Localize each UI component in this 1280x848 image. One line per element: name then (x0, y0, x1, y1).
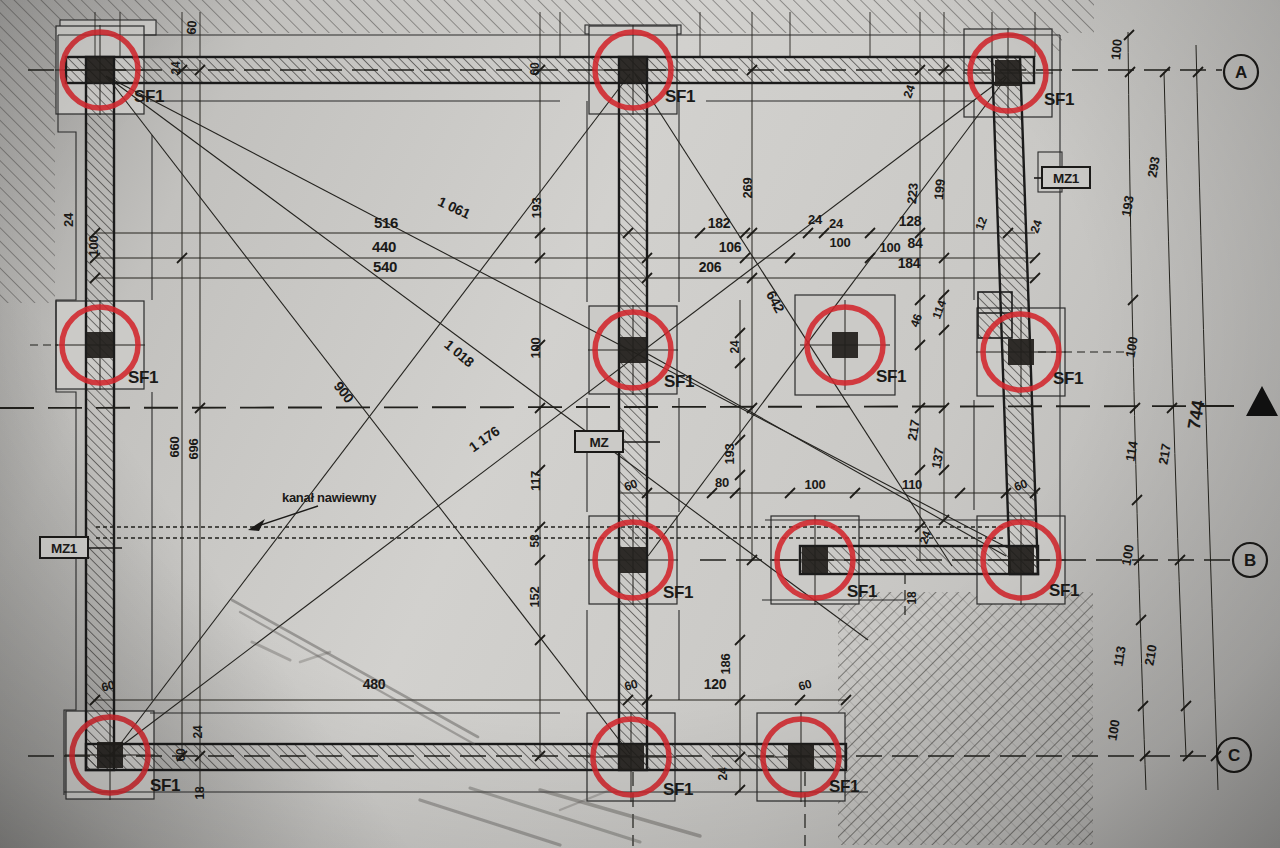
dimension-label: 46 (907, 312, 925, 329)
column-mark-label: SF1 (829, 777, 859, 796)
grid-bubble-label: A (1235, 63, 1247, 82)
dimension-label: 217 (1155, 443, 1173, 466)
dimension-label: 18 (193, 786, 207, 799)
sf1-column (1008, 547, 1034, 573)
dimension-label: 186 (718, 654, 733, 675)
column-mark-label: SF1 (847, 582, 877, 601)
duct-annotation-group: kanał nawiewny (248, 490, 377, 531)
scanned-drawing-photo: kanał nawiewny SF1SF1SF1SF1SF1SF1SF1SF1S… (0, 0, 1280, 848)
dimension-label: 184 (898, 255, 921, 271)
dimension-label: 100 (1108, 39, 1125, 61)
dimension-label: 152 (527, 587, 542, 608)
dimension-label: 24 (716, 767, 730, 780)
grid-bubble-label: B (1244, 551, 1256, 570)
dimension-label: 100 (830, 235, 851, 250)
dimension-label: 106 (719, 239, 742, 255)
dimension-label: 12 (972, 215, 990, 232)
dimension-tick (1124, 30, 1134, 40)
dimension-tick (1181, 701, 1191, 711)
dimension-label: 60 (174, 748, 188, 761)
dimension-label: 1 018 (441, 336, 477, 370)
sf1-column (1008, 339, 1034, 365)
dimension-tick (1193, 67, 1203, 77)
column-mark-label: SF1 (150, 776, 180, 795)
dimension-label: 114 (930, 298, 950, 321)
foundation-plan-svg: kanał nawiewny SF1SF1SF1SF1SF1SF1SF1SF1S… (0, 0, 1280, 848)
dimension-label: 440 (372, 238, 396, 255)
dimension-label: 120 (704, 676, 727, 692)
dimension-label: 660 (167, 437, 182, 458)
sf1-column (87, 57, 113, 83)
dimension-label: 516 (374, 214, 398, 231)
dimension-tick (1160, 67, 1170, 77)
grid-bubble-label: C (1228, 746, 1240, 765)
dimension-label: 100 (1122, 336, 1140, 359)
dimension-label: 540 (373, 258, 397, 275)
column-mark-label: SF1 (134, 87, 164, 106)
dimension-label: 84 (908, 235, 923, 251)
sf1-column (788, 744, 814, 770)
dimension-label: 900 (331, 378, 358, 406)
dimension-label: 100 (1104, 719, 1122, 742)
dimension-label: 100 (880, 240, 901, 255)
dimension-label: 199 (931, 179, 948, 201)
dimension-label: 24 (61, 212, 76, 227)
column-mark-label: SF1 (664, 372, 694, 391)
dimension-label: 24 (916, 529, 934, 546)
column-mark-label: SF1 (1049, 581, 1079, 600)
dimension-label: 24 (829, 216, 844, 231)
datum-triangle-marker (1246, 386, 1278, 416)
wall-tags-layer: MZ1MZMZ1 (40, 167, 1090, 558)
sf1-column (620, 57, 646, 83)
dimension-label: 24 (169, 61, 183, 74)
dimension-tick (1130, 403, 1140, 413)
column-mark-label: SF1 (663, 583, 693, 602)
dimension-label: 206 (699, 259, 722, 275)
dimension-label: 58 (528, 534, 542, 547)
dimension-label: 114 (1122, 439, 1140, 462)
dimension-label: 18 (905, 591, 919, 604)
dimension-label: 60 (183, 20, 199, 35)
sf1-column (620, 547, 646, 573)
dimension-tick (1128, 295, 1138, 305)
dimension-label: 744 (1184, 399, 1209, 431)
sf1-column (97, 742, 123, 768)
dimension-label: 1 061 (436, 193, 474, 222)
dimension-label: 100 (805, 477, 826, 492)
dimension-label: 60 (797, 677, 814, 694)
sf1-column (802, 547, 828, 573)
sf1-column (618, 744, 644, 770)
dimension-tick (1167, 403, 1177, 413)
wall-tag-label: MZ (590, 435, 609, 450)
dimension-label: 100 (1118, 544, 1136, 567)
dimension-label: 60 (528, 62, 542, 75)
dimension-tick (1136, 615, 1146, 625)
dimension-label: 210 (1141, 644, 1159, 667)
dimension-label: 113 (1110, 645, 1128, 667)
dimension-tick (1125, 67, 1135, 77)
dimension-label: 80 (715, 475, 729, 490)
sf1-column (620, 337, 646, 363)
column-mark-label: SF1 (665, 87, 695, 106)
sf1-column (87, 332, 113, 358)
dimension-label: 128 (899, 213, 922, 229)
dimension-label: 24 (728, 340, 742, 353)
dimension-label: 269 (740, 178, 755, 199)
dimension-label: 182 (708, 215, 731, 231)
sf1-column (995, 60, 1021, 86)
wall-tag-label: MZ1 (51, 541, 78, 556)
dimension-label: 696 (186, 439, 201, 460)
dimension-label: 117 (528, 471, 543, 491)
dimension-label: 293 (1144, 156, 1162, 179)
column-mark-label: SF1 (128, 368, 158, 387)
sf1-column (832, 332, 858, 358)
duct-annotation: kanał nawiewny (282, 490, 377, 505)
dimension-label: 100 (86, 236, 101, 257)
dimension-label: 24 (808, 212, 823, 227)
dimension-label: 642 (763, 288, 788, 316)
dimension-label: 24 (1027, 218, 1045, 235)
dimension-label: 100 (528, 338, 543, 359)
dimension-label: 24 (191, 725, 205, 738)
dimension-label: 24 (900, 83, 918, 100)
dimension-label: 480 (363, 676, 386, 692)
dimension-label: 193 (722, 444, 737, 465)
column-mark-label: SF1 (663, 780, 693, 799)
exterior-hatch-regions (0, 0, 1094, 845)
dimension-label: 223 (904, 183, 921, 205)
column-mark-label: SF1 (1053, 369, 1083, 388)
dimension-label: 1 176 (466, 422, 503, 455)
dimension-label: 110 (902, 477, 922, 492)
column-mark-label: SF1 (1044, 90, 1074, 109)
column-mark-label: SF1 (876, 367, 906, 386)
wall-tag-label: MZ1 (1053, 171, 1080, 186)
dimension-label: 193 (1118, 195, 1136, 218)
dimension-label: 193 (529, 198, 544, 219)
